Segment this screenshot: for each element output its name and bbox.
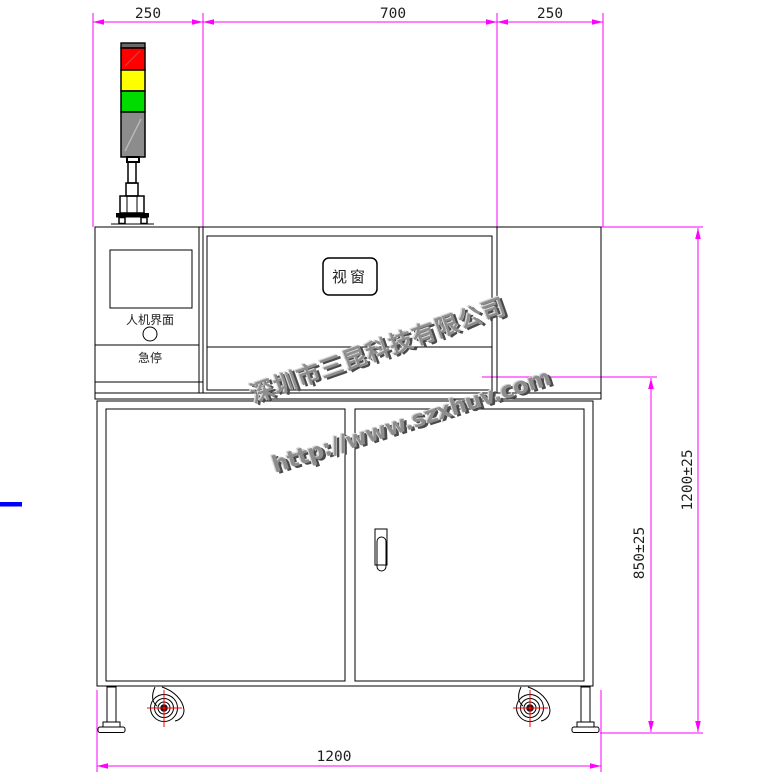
hmi-panel: 人机界面 急停 — [95, 250, 199, 365]
arrow-icon — [97, 763, 108, 769]
signal-tower-light — [111, 43, 154, 224]
tower-pole — [128, 162, 136, 183]
tower-base-foot — [119, 218, 125, 224]
arrow-icon — [203, 19, 214, 25]
foot-collar — [577, 722, 594, 727]
tower-base-foot — [141, 218, 147, 224]
estop-label: 急停 — [138, 350, 162, 365]
leveling-foot-left — [98, 687, 125, 733]
dim-overall-width: 1200 — [317, 749, 352, 765]
dimension-layer: 250 700 250 1200±25 850±25 1200 — [93, 6, 703, 772]
arrow-icon — [695, 721, 701, 732]
dim-top-right: 250 — [537, 6, 563, 22]
foot-column — [107, 687, 116, 722]
hmi-screen — [110, 250, 192, 308]
dim-top-left: 250 — [135, 6, 161, 22]
arrow-icon — [648, 378, 654, 389]
dim-top-middle: 700 — [380, 6, 406, 22]
arrow-icon — [497, 19, 508, 25]
estop-button — [143, 327, 157, 341]
crosshair-center — [529, 707, 532, 710]
window-label: 视窗 — [332, 268, 368, 286]
arrow-icon — [590, 763, 601, 769]
drawing-svg: 250 700 250 1200±25 850±25 1200 — [0, 0, 774, 782]
caster-wheel-right — [513, 687, 550, 727]
cabinet-door-right — [355, 409, 584, 681]
tower-pole-lower — [126, 183, 138, 196]
crosshair-center — [163, 707, 166, 710]
foot-collar — [103, 722, 120, 727]
dim-table-height: 850±25 — [632, 527, 648, 579]
left-margin-blue-mark — [0, 502, 22, 507]
tower-mount-block — [120, 196, 144, 213]
arrow-icon — [486, 19, 497, 25]
arrow-icon — [93, 19, 104, 25]
green-lamp-segment — [121, 91, 145, 112]
foot-pad — [572, 727, 599, 733]
arrow-icon — [192, 19, 203, 25]
arrow-icon — [592, 19, 603, 25]
caster-wheel-left — [147, 687, 184, 727]
arrow-icon — [695, 228, 701, 239]
leveling-foot-right — [572, 687, 599, 733]
foot-pad — [98, 727, 125, 733]
door-handle-grip — [377, 537, 386, 571]
dim-overall-height: 1200±25 — [680, 449, 696, 510]
hmi-label: 人机界面 — [126, 313, 174, 327]
red-lamp-segment — [121, 48, 145, 70]
yellow-lamp-segment — [121, 70, 145, 91]
cad-drawing-machine-front-view: 250 700 250 1200±25 850±25 1200 — [0, 0, 774, 782]
arrow-icon — [648, 721, 654, 732]
foot-column — [581, 687, 590, 722]
